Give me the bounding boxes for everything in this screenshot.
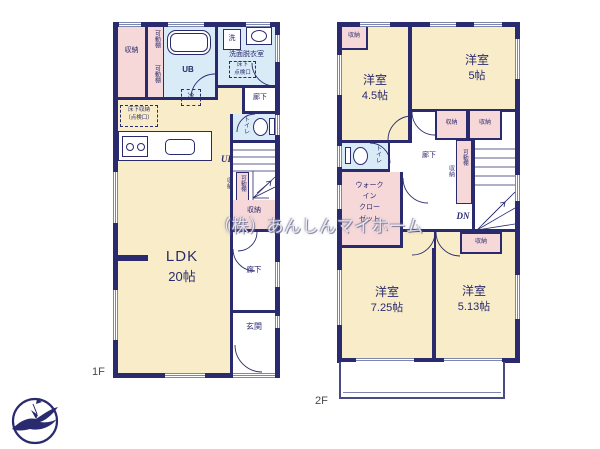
fridge-label: 冷 — [182, 93, 200, 102]
wash-basin — [246, 27, 272, 45]
closet-nw-label: 収納 — [118, 47, 145, 56]
window-marker — [275, 35, 280, 62]
floor-2-label: 2F — [315, 395, 328, 407]
window-marker — [337, 55, 342, 95]
closet-c-label: 収納 — [462, 239, 500, 247]
stair-zone-2f — [472, 140, 515, 232]
window-marker — [165, 373, 205, 378]
room-size: 4.5帖 — [350, 90, 400, 104]
ldk-size: 20帖 — [154, 269, 210, 285]
stair-shelf-label-2f: 可動棚 — [461, 149, 468, 166]
room-name: 洋室 — [444, 284, 504, 299]
washer-label: 洗 — [224, 35, 240, 44]
balcony-edge-line — [343, 392, 501, 393]
room-size: 5.13帖 — [444, 301, 504, 315]
room-name: 洋室 — [452, 53, 502, 68]
toilet-1f-label: トイレ — [241, 116, 249, 134]
closet-c: 収納 — [460, 232, 502, 254]
shelf-strip-nw: 可動棚 可動棚 — [148, 27, 164, 100]
wash-basin-bowl — [251, 30, 267, 42]
closet-nw-2f-label: 収納 — [342, 33, 366, 41]
window-marker — [275, 115, 280, 135]
toilet-1f-bowl — [253, 118, 268, 136]
entry-porch — [230, 345, 275, 373]
closet-a: 収納 — [435, 109, 468, 140]
porch-step-edge — [233, 373, 275, 378]
room-western-4-5: 収納 洋室 4.5帖 — [342, 27, 412, 143]
bathtub — [167, 30, 211, 55]
hall-lower-label: 廊下 — [233, 265, 275, 274]
closet-b: 収納 — [468, 109, 502, 140]
balcony — [339, 362, 505, 399]
hall-2f-label: 廊下 — [416, 152, 442, 161]
window-marker — [430, 22, 456, 27]
stair-closet-label-2f: 収納 — [446, 165, 454, 177]
shelf-bottom-label: 可動棚 — [152, 65, 160, 83]
window-marker — [275, 262, 280, 287]
room-western-5-label: 洋室 5帖 — [452, 53, 502, 84]
window-marker — [337, 270, 342, 325]
room-western-5-13: 収納 洋室 5.13帖 — [436, 232, 515, 358]
dn-label: DN — [452, 211, 474, 222]
bath-label: UB — [164, 65, 212, 75]
window-marker — [515, 39, 520, 79]
ldk-label: LDK 20帖 — [154, 248, 210, 285]
room-western-5: 洋室 5帖 — [412, 27, 515, 112]
stair-shelf-label-1f: 可動棚 — [239, 175, 246, 192]
window-marker — [275, 316, 280, 328]
floor-1-label: 1F — [92, 366, 105, 378]
floor-1-plan: 収納 可動棚 可動棚 UB 洗 洗面脱衣室 床下 点検口 廊下 — [113, 22, 280, 378]
window-marker — [474, 22, 502, 27]
window-marker — [515, 275, 520, 319]
up-label: UP — [218, 154, 236, 165]
ldk-name: LDK — [154, 248, 210, 267]
floorplan-canvas: 収納 可動棚 可動棚 UB 洗 洗面脱衣室 床下 点検口 廊下 — [0, 0, 600, 449]
closet-a-label: 収納 — [437, 120, 466, 128]
toilet-2f-label: トイレ — [373, 145, 381, 163]
room-western-5-13-label: 洋室 5.13帖 — [444, 284, 504, 315]
ldk-wall-stub — [118, 255, 148, 261]
hall-lower: 廊下 — [230, 232, 275, 310]
window-marker — [119, 22, 141, 27]
window-marker — [337, 185, 342, 209]
closet-nw-2f: 収納 — [342, 27, 368, 50]
room-closet-nw: 収納 — [118, 27, 148, 100]
room-size: 5帖 — [452, 70, 502, 84]
bathtub-inner — [170, 33, 208, 52]
window-marker — [337, 146, 342, 167]
window-marker — [515, 175, 520, 201]
closet-b-label: 収納 — [470, 120, 500, 128]
window-marker — [360, 22, 390, 27]
toilet-2f-bowl — [353, 147, 368, 165]
room-size: 7.25帖 — [355, 302, 419, 316]
stair-shelf-strip-2f: 可動棚 — [456, 140, 472, 204]
genkan-label: 玄関 — [233, 322, 275, 332]
stove — [122, 136, 148, 157]
washing-machine: 洗 — [223, 29, 241, 50]
room-washroom: 洗 洗面脱衣室 床下 点検口 — [218, 27, 275, 88]
window-marker — [113, 172, 118, 223]
room-toilet-1f: トイレ — [230, 114, 275, 143]
stairs-down-drawing — [475, 140, 515, 232]
burner-icon — [126, 143, 134, 151]
room-western-4-5-label: 洋室 4.5帖 — [350, 73, 400, 104]
window-marker — [113, 290, 118, 340]
washroom-label: 洗面脱衣室 — [218, 51, 275, 60]
shelf-top-label: 可動棚 — [152, 30, 160, 48]
room-ldk-ext — [218, 88, 242, 114]
burner-icon — [137, 143, 145, 151]
room-name: 洋室 — [355, 285, 419, 300]
watermark-text: （株）あんしんマイホーム — [214, 212, 424, 237]
fridge-space: 冷 — [181, 89, 201, 106]
room-western-7-25-label: 洋室 7.25帖 — [355, 285, 419, 316]
company-logo-icon — [6, 390, 64, 448]
window-marker — [246, 22, 270, 27]
kitchen-sink — [165, 139, 195, 155]
underfloor-inspection-hatch: 床下 点検口 — [229, 61, 256, 78]
stair-closet-label-1f: 収納 — [224, 177, 232, 189]
hall-upper: 廊下 — [242, 88, 275, 114]
room-genkan: 玄関 — [230, 310, 275, 345]
toilet-2f-tank — [345, 147, 351, 164]
underfloor-storage: 床下収納 （点検口） — [120, 105, 158, 127]
window-marker — [168, 22, 204, 27]
room-name: 洋室 — [350, 73, 400, 88]
room-toilet-2f: トイレ — [342, 143, 390, 172]
room-western-7-25: 洋室 7.25帖 — [342, 248, 436, 358]
hall-upper-label: 廊下 — [245, 94, 275, 103]
kitchen-counter — [118, 131, 212, 161]
floor-2-plan: 収納 洋室 4.5帖 洋室 5帖 収納 収納 トイレ — [337, 22, 520, 363]
